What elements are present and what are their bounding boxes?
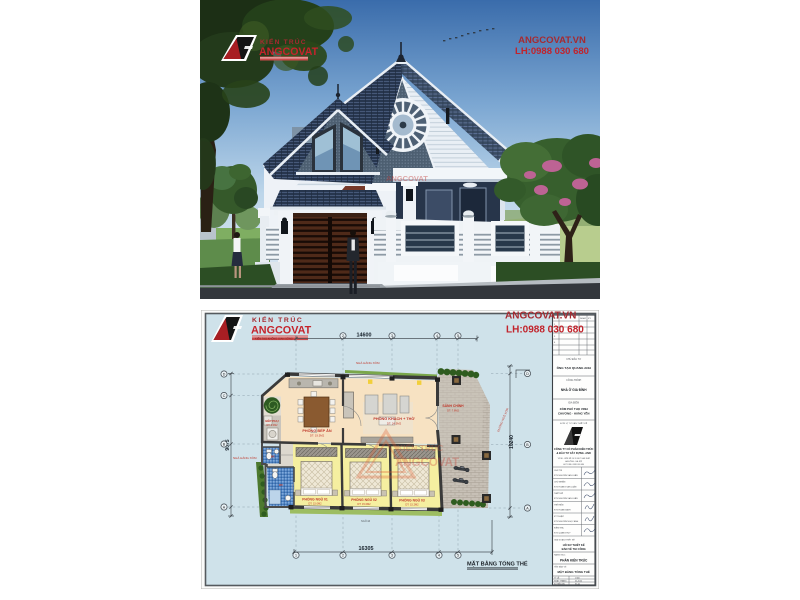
svg-text:KTS NGUYỄN VĂN LUÂN: KTS NGUYỄN VĂN LUÂN — [554, 497, 578, 500]
svg-text:14600: 14600 — [357, 333, 372, 339]
svg-text:HẠNG MỤC: HẠNG MỤC — [554, 554, 566, 557]
svg-text:3: 3 — [391, 554, 393, 558]
svg-text:NGÀY THÁNG: NGÀY THÁNG — [554, 579, 567, 582]
svg-text:DT: 7.6M2: DT: 7.6M2 — [447, 409, 459, 413]
svg-text:KT-01: KT-01 — [575, 583, 580, 585]
svg-text:HÀ ĐÔNG - HÀ NỘI: HÀ ĐÔNG - HÀ NỘI — [565, 460, 582, 463]
svg-text:SỐ HIỆU BV: SỐ HIỆU BV — [554, 582, 566, 585]
svg-text:ANGCOVAT: ANGCOVAT — [386, 174, 428, 183]
svg-text:GIAI ĐOẠN THIẾT KẾ: GIAI ĐOẠN THIẾT KẾ — [554, 539, 575, 542]
svg-text:CHỦ NHIỆM: CHỦ NHIỆM — [554, 481, 566, 484]
svg-text:NHÀ Ở GIA ĐÌNH: NHÀ Ở GIA ĐÌNH — [561, 387, 587, 392]
svg-text:WC: WC — [271, 456, 275, 459]
svg-text:ANGCOVAT: ANGCOVAT — [395, 457, 459, 469]
svg-text:DT: 19.5M2: DT: 19.5M2 — [310, 434, 325, 438]
svg-text:ANGCOVAT.VN: ANGCOVAT.VN — [518, 35, 586, 46]
svg-text:THỂ HIỆN: THỂ HIỆN — [554, 504, 564, 507]
svg-text:CÔNG TRÌNH: CÔNG TRÌNH — [566, 379, 581, 382]
svg-text:THIẾT KẾ: THIẾT KẾ — [554, 492, 564, 495]
svg-text:ANGCOVAT.VN: ANGCOVAT.VN — [505, 311, 576, 322]
svg-text:HOTLINE: 0988 030 680: HOTLINE: 0988 030 680 — [563, 464, 584, 466]
svg-text:ĐƠN VỊ TƯ VẤN THIẾT KẾ: ĐƠN VỊ TƯ VẤN THIẾT KẾ — [560, 422, 588, 425]
svg-text:CHỦ ĐẦU TƯ: CHỦ ĐẦU TƯ — [566, 358, 581, 361]
svg-text:PHÒNG BẾP ĂN: PHÒNG BẾP ĂN — [302, 428, 332, 433]
svg-text:NGÀY: NGÀY — [580, 317, 587, 320]
svg-text:KTS QUANG HUY: KTS QUANG HUY — [554, 532, 571, 535]
svg-text:C: C — [223, 394, 226, 398]
svg-text:NHÀ HÀNG XÓM: NHÀ HÀNG XÓM — [356, 360, 380, 365]
svg-text:CHƯƠNG - HƯNG YÊN: CHƯƠNG - HƯNG YÊN — [558, 411, 589, 416]
svg-text:1/100: 1/100 — [575, 577, 580, 579]
svg-text:TÊN BẢN VẼ: TÊN BẢN VẼ — [554, 566, 567, 569]
svg-text:PHÒNG KHÁCH + THỜ: PHÒNG KHÁCH + THỜ — [373, 416, 415, 421]
svg-text:CHỦ TRÌ: CHỦ TRÌ — [554, 469, 563, 472]
svg-text:KỸ THUẬT: KỸ THUẬT — [554, 515, 565, 518]
svg-text:DT: 15.0M2: DT: 15.0M2 — [308, 502, 322, 506]
svg-text:KTS NGUYỄN VĂN LUÂN: KTS NGUYỄN VĂN LUÂN — [554, 474, 578, 477]
svg-text:DT: 15.0M2: DT: 15.0M2 — [357, 502, 371, 506]
svg-text:KIỂM TRA: KIỂM TRA — [554, 527, 564, 530]
svg-text:KTS NGUYỄN NGỌC ANH: KTS NGUYỄN NGỌC ANH — [554, 520, 579, 523]
svg-text:TỶ LỆ: TỶ LỆ — [554, 576, 560, 579]
svg-text:ANGCOVAT: ANGCOVAT — [251, 325, 312, 337]
svg-text:NHÀ HÀNG XÓM: NHÀ HÀNG XÓM — [233, 455, 257, 460]
svg-text:KIẾN TRÚC: KIẾN TRÚC — [397, 442, 443, 453]
svg-text:PHÒNG NGỦ 03: PHÒNG NGỦ 03 — [399, 498, 425, 503]
svg-text:DT: 6.0M2: DT: 6.0M2 — [267, 424, 279, 427]
svg-text:BẾP PHỤ: BẾP PHỤ — [265, 418, 278, 423]
svg-text:16305: 16305 — [359, 546, 374, 552]
svg-text:VPGD: LIỀN KỀ 16.19 KĐT VĂN KH: VPGD: LIỀN KỀ 16.19 KĐT VĂN KHÊ — [558, 457, 591, 460]
svg-text:LH:0988 030 680: LH:0988 030 680 — [515, 46, 589, 57]
svg-text:10240: 10240 — [509, 435, 515, 449]
svg-text:ANGCOVAT: ANGCOVAT — [259, 46, 319, 58]
svg-text:SẢNH CHÍNH: SẢNH CHÍNH — [442, 403, 464, 408]
svg-text:XÓM PHÚ THỌ VINH: XÓM PHÚ THỌ VINH — [560, 406, 588, 411]
svg-text:KTS HOÀNG ANH: KTS HOÀNG ANH — [554, 509, 571, 512]
svg-text:MẶT BẰNG TỔNG THỂ: MẶT BẰNG TỔNG THỂ — [467, 560, 528, 568]
svg-text:PHÒNG NGỦ 01: PHÒNG NGỦ 01 — [302, 497, 328, 502]
svg-text:05-2020: 05-2020 — [575, 580, 582, 582]
svg-text:DT: 24.5M2: DT: 24.5M2 — [387, 422, 402, 426]
svg-text:D: D — [526, 372, 529, 376]
svg-text:4: 4 — [438, 554, 440, 558]
svg-text:MẶT BẰNG TỔNG THỂ: MẶT BẰNG TỔNG THỂ — [557, 569, 590, 574]
svg-text:DT: 15.2M2: DT: 15.2M2 — [405, 503, 419, 507]
svg-text:PHÒNG NGỦ 02: PHÒNG NGỦ 02 — [351, 497, 377, 502]
svg-text:ĐỊA ĐIỂM: ĐỊA ĐIỂM — [568, 402, 579, 405]
svg-text:PHẦN KIẾN TRÚC: PHẦN KIẾN TRÚC — [560, 558, 588, 563]
svg-text:2: 2 — [342, 554, 344, 558]
svg-text:LH:0988 030 680: LH:0988 030 680 — [506, 325, 584, 336]
svg-text:1: 1 — [295, 554, 297, 558]
svg-text:KTS HOÀNG VĂN LUÂN: KTS HOÀNG VĂN LUÂN — [554, 486, 577, 489]
svg-text:ÔNG TẠO QUANG ANH: ÔNG TẠO QUANG ANH — [557, 365, 592, 370]
svg-text:5: 5 — [457, 554, 459, 558]
svg-text:D: D — [223, 372, 226, 376]
svg-text:WC: WC — [279, 484, 283, 487]
